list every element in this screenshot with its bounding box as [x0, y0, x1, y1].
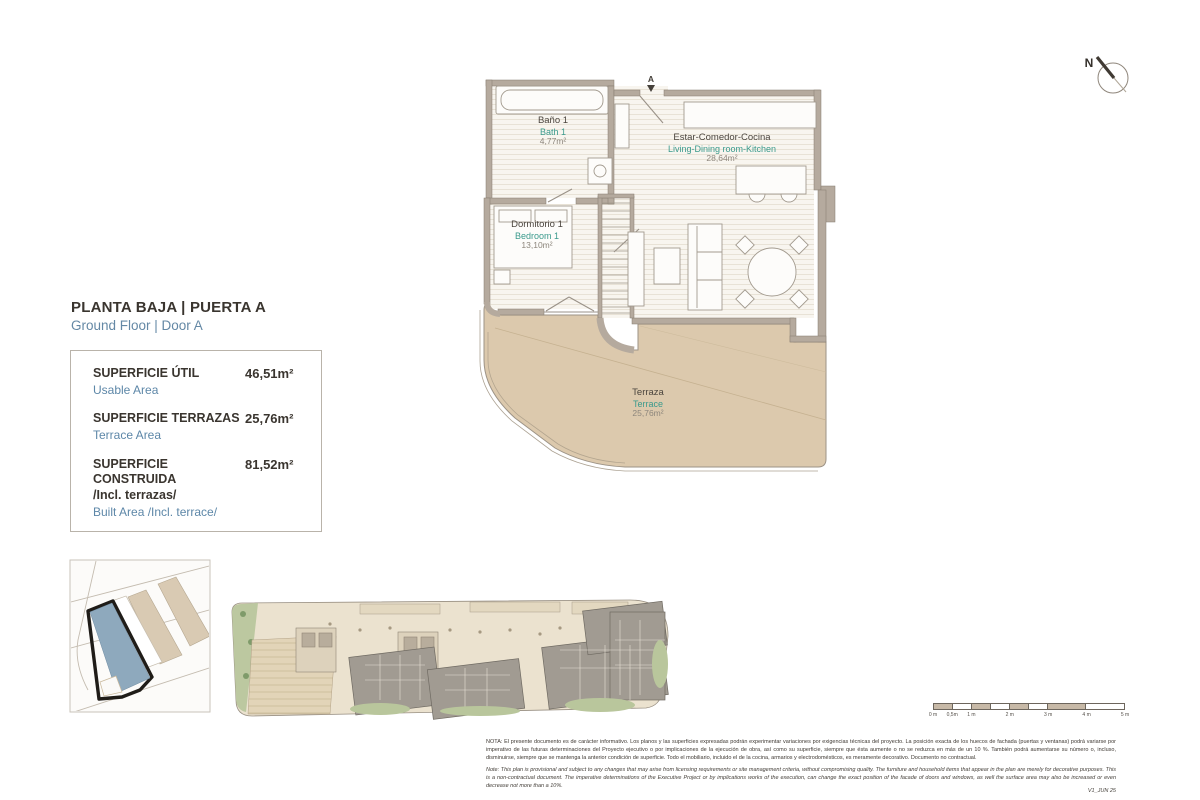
- disclaimer-es: NOTA: El presente documento es de caráct…: [486, 739, 1116, 763]
- surface-label-en: Terrace Area: [93, 427, 307, 444]
- kitchen-counter: [684, 102, 816, 128]
- scale-tick: 2 m: [1006, 712, 1014, 718]
- room-area: 25,76m²: [632, 409, 664, 419]
- bath-sink: [588, 158, 612, 184]
- scale-tick: 5 m: [1121, 712, 1129, 718]
- room-label-terrace: Terraza Terrace 25,76m²: [632, 388, 664, 419]
- surface-value: 25,76m²: [245, 411, 307, 426]
- scale-tick: 4 m: [1082, 712, 1090, 718]
- scale-tick: 0 m: [929, 712, 937, 718]
- room-area: 28,64m²: [668, 154, 776, 164]
- room-name-es: Dormitorio 1: [511, 220, 563, 231]
- scale-tick: 0,5m: [947, 712, 958, 718]
- surface-value: 46,51m²: [245, 366, 307, 381]
- scale-tick: 1 m: [967, 712, 975, 718]
- surface-label-es: SUPERFICIE TERRAZAS: [93, 411, 245, 427]
- surface-areas-box: SUPERFICIE ÚTIL 46,51m² Usable Area SUPE…: [70, 350, 322, 532]
- floor-plan-sheet: A N: [0, 0, 1200, 800]
- surface-label-en: Usable Area: [93, 382, 307, 399]
- surface-item-terrace: SUPERFICIE TERRAZAS 25,76m² Terrace Area: [93, 411, 307, 443]
- disclaimer-block: NOTA: El presente documento es de caráct…: [486, 739, 1116, 791]
- surface-label-es: SUPERFICIE CONSTRUIDA: [93, 457, 245, 488]
- north-label: N: [1085, 56, 1094, 70]
- room-area: 4,77m²: [538, 137, 568, 147]
- tv-unit: [628, 232, 644, 306]
- bathtub: [496, 86, 608, 114]
- room-label-bedroom: Dormitorio 1 Bedroom 1 13,10m²: [511, 220, 563, 251]
- surface-item-usable: SUPERFICIE ÚTIL 46,51m² Usable Area: [93, 366, 307, 398]
- surface-label-en: Built Area /Incl. terrace/: [93, 504, 307, 521]
- location-map: [70, 560, 210, 712]
- closet: [615, 104, 629, 148]
- north-arrow-icon: N: [1085, 56, 1128, 93]
- room-name-es: Terraza: [632, 388, 664, 399]
- room-name-es: Estar-Comedor-Cocina: [668, 133, 776, 144]
- disclaimer-en: Note: This plan is provisional and subje…: [486, 767, 1116, 791]
- scale-bar-segments: [933, 703, 1125, 710]
- surface-value: 81,52m²: [245, 457, 307, 472]
- sofa: [688, 224, 722, 310]
- scale-bar: 0 m 0,5m 1 m 2 m 3 m 4 m 5 m: [933, 703, 1125, 721]
- room-area: 13,10m²: [511, 241, 563, 251]
- version-label: V1_JUN 25: [1088, 788, 1116, 794]
- site-plan: [232, 600, 668, 719]
- room-label-living: Estar-Comedor-Cocina Living-Dining room-…: [668, 133, 776, 164]
- surface-label-es-extra: /Incl. terrazas/: [93, 488, 307, 504]
- page-title: PLANTA BAJA | PUERTA A: [71, 299, 266, 316]
- entrance-label: A: [648, 74, 654, 84]
- page-subtitle: Ground Floor | Door A: [71, 318, 203, 333]
- scale-tick: 3 m: [1044, 712, 1052, 718]
- room-name-es: Baño 1: [538, 116, 568, 127]
- surface-item-built: SUPERFICIE CONSTRUIDA 81,52m² /Incl. ter…: [93, 457, 307, 521]
- surface-label-es: SUPERFICIE ÚTIL: [93, 366, 245, 382]
- room-label-bath: Baño 1 Bath 1 4,77m²: [538, 116, 568, 147]
- coffee-table: [654, 248, 680, 284]
